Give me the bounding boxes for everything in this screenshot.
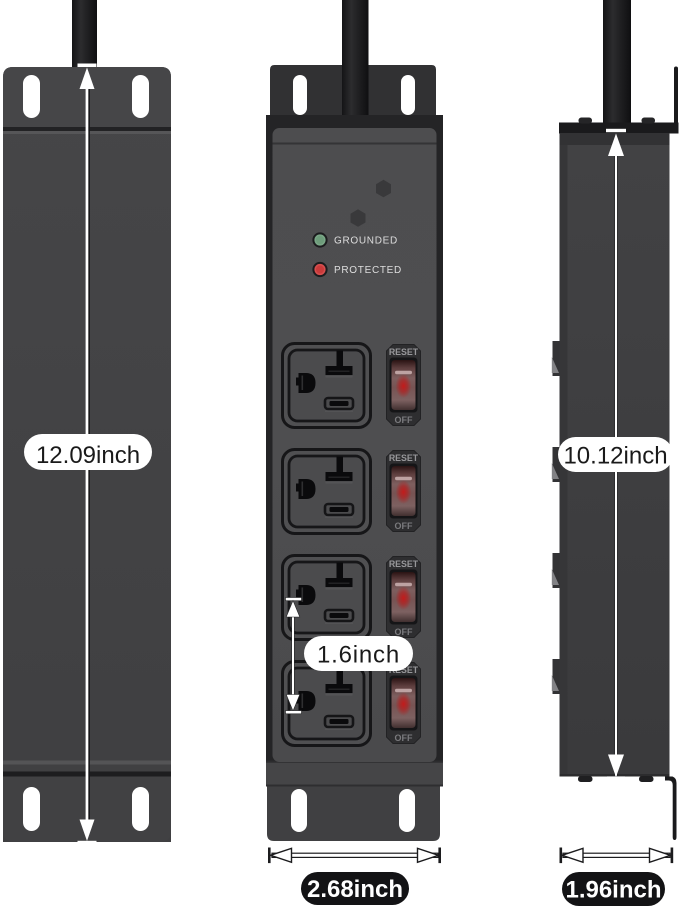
svg-text:1.6inch: 1.6inch bbox=[317, 642, 400, 669]
svg-text:10.12inch: 10.12inch bbox=[563, 443, 667, 470]
svg-text:12.09inch: 12.09inch bbox=[36, 442, 140, 469]
svg-text:PROTECTED: PROTECTED bbox=[334, 265, 402, 276]
svg-text:GROUNDED: GROUNDED bbox=[334, 236, 398, 247]
svg-text:1.96inch: 1.96inch bbox=[565, 877, 661, 904]
svg-text:2.68inch: 2.68inch bbox=[307, 876, 403, 903]
